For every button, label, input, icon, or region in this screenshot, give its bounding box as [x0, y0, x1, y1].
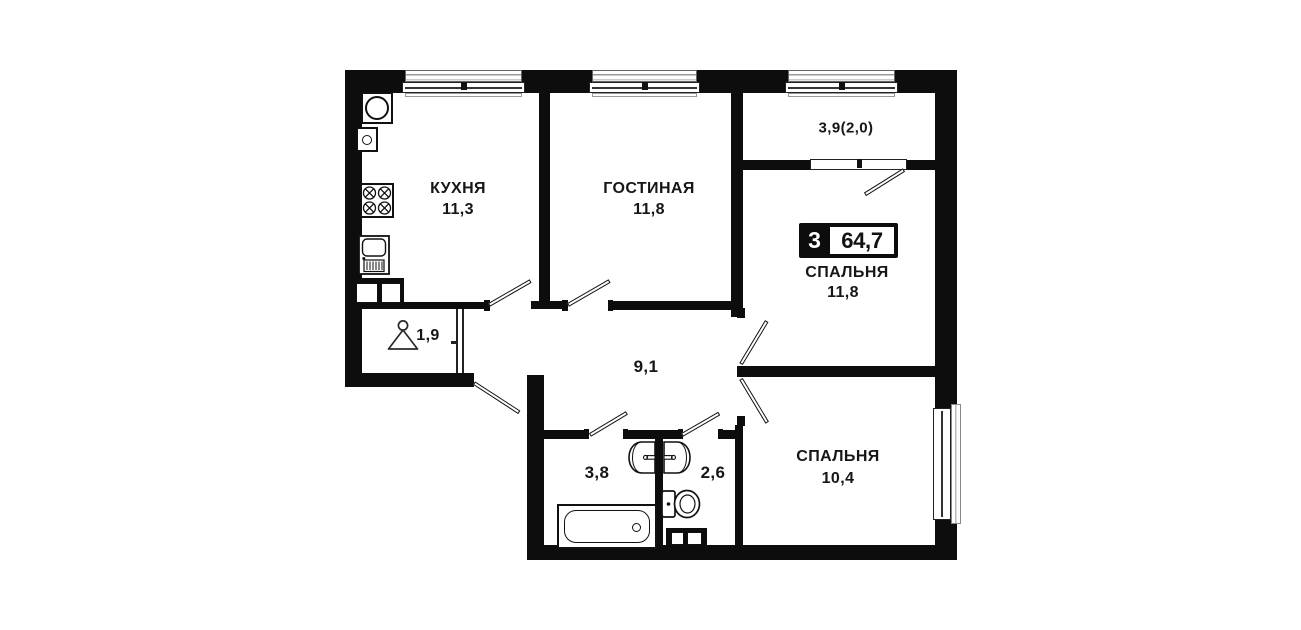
- window-ledge: [592, 93, 697, 97]
- bedroom-top-door: [739, 320, 768, 365]
- wall: [527, 375, 544, 560]
- washing-machine-drum: [365, 96, 389, 120]
- window-mullion: [839, 82, 845, 90]
- window-mullion: [461, 82, 467, 90]
- window-sill: [592, 70, 697, 82]
- rooms-count-badge: 3: [799, 223, 830, 258]
- wall: [404, 302, 489, 309]
- bathtub: [557, 504, 657, 549]
- kitchen-door: [488, 279, 532, 306]
- door-jamb: [737, 416, 745, 426]
- wall: [731, 88, 743, 317]
- wall: [520, 70, 593, 93]
- washbasin-toilet: [663, 440, 692, 475]
- window-sill: [405, 70, 522, 82]
- floor-plan: КУХНЯ 11,3 ГОСТИНАЯ 11,8 3,9(2,0) СПАЛЬН…: [0, 0, 1301, 630]
- window-mullion: [642, 82, 648, 90]
- total-area-badge: 64,7: [830, 227, 894, 254]
- balcony-window: [788, 70, 895, 99]
- bedroom-top-label: СПАЛЬНЯ: [805, 264, 888, 282]
- entrance-door: [473, 381, 520, 414]
- wall: [544, 430, 588, 439]
- bedroom-bottom-area: 10,4: [822, 470, 855, 488]
- water-heater: [356, 127, 378, 152]
- door-jamb: [737, 308, 745, 318]
- toilet-area: 2,6: [701, 463, 726, 483]
- bedroom-bottom-label: СПАЛЬНЯ: [796, 448, 879, 466]
- balcony-area: 3,9(2,0): [819, 120, 874, 137]
- wall: [345, 70, 362, 387]
- door-jamb: [718, 429, 723, 439]
- vent-shaft: [671, 532, 684, 545]
- wardrobe-area: 1,9: [416, 327, 439, 345]
- hallway-area: 9,1: [634, 357, 659, 377]
- vent-shaft: [356, 283, 378, 303]
- door-handle: [451, 341, 458, 344]
- window-mullion: [857, 159, 862, 168]
- wall: [935, 70, 957, 408]
- window-ledge: [405, 93, 522, 97]
- kitchen-label: КУХНЯ: [430, 180, 486, 198]
- window-ledge: [788, 93, 895, 97]
- living-room-area: 11,8: [633, 201, 665, 219]
- washing-machine: [361, 92, 393, 124]
- wall: [743, 160, 810, 170]
- balcony-door-frame: [810, 159, 907, 170]
- living-room-label: ГОСТИНАЯ: [603, 180, 695, 198]
- wall: [539, 88, 550, 304]
- door-jamb: [608, 300, 613, 311]
- stove: [360, 183, 394, 218]
- water-heater-dial: [362, 135, 372, 145]
- toilet-bowl: [661, 488, 701, 520]
- vent-shaft: [381, 283, 401, 303]
- washbasin-bathroom: [627, 440, 656, 475]
- wall: [612, 301, 742, 310]
- wall: [345, 373, 474, 387]
- wall: [907, 160, 935, 170]
- wall: [735, 425, 743, 545]
- toilet-door: [681, 412, 720, 437]
- door-jamb: [584, 429, 589, 439]
- window-sill: [951, 404, 961, 524]
- window-frame: [933, 408, 951, 520]
- wardrobe-sliding-door: [456, 309, 464, 373]
- wall: [737, 366, 935, 377]
- bathtub-drain: [632, 523, 641, 532]
- living-room-window: [592, 70, 697, 99]
- bathroom-area: 3,8: [585, 463, 610, 483]
- wall: [628, 430, 678, 439]
- door-jamb: [623, 429, 628, 439]
- kitchen-sink: [358, 235, 390, 275]
- living-room-door: [567, 279, 611, 306]
- kitchen-area: 11,3: [442, 201, 474, 219]
- vent-shaft: [687, 532, 702, 545]
- apartment-badge: 3 64,7: [799, 223, 898, 258]
- kitchen-window: [405, 70, 522, 99]
- bedroom-top-area: 11,8: [827, 284, 859, 302]
- window-sill: [788, 70, 895, 82]
- bedroom-window: [933, 408, 961, 520]
- balcony-door: [864, 168, 905, 196]
